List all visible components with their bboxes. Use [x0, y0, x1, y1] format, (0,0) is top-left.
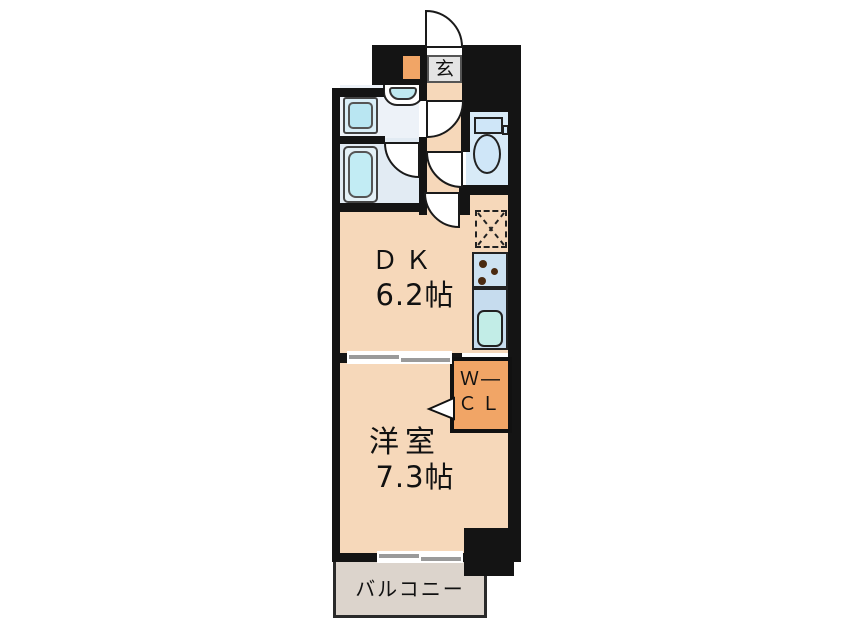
door-swing-overlay [0, 0, 846, 634]
entrance-door-arc [426, 11, 462, 47]
western-room-label: 洋室 [335, 428, 475, 458]
toilet-door-arc [427, 152, 462, 187]
washroom-door-arc [427, 101, 463, 137]
sliding-door-dk-western [347, 351, 452, 364]
dk-room-size: 6.2帖 [340, 281, 490, 310]
window-panel [379, 554, 419, 558]
bathroom-door-arc [385, 143, 419, 177]
western-room-size: 7.3帖 [340, 463, 490, 492]
balcony-sliding-window [377, 551, 463, 563]
dk-room-label: ＤＫ [340, 248, 470, 274]
sliding-door-panel [349, 355, 399, 359]
wcl-entry-arrow-icon [429, 398, 454, 419]
sliding-door-panel [401, 358, 450, 362]
dk-door-arc [425, 193, 459, 227]
floor-plan: 玄 Ｗ― ＣＬ ＤＫ 6.2帖 洋室 7.3帖 バルコニー [0, 0, 846, 634]
window-panel [421, 557, 461, 561]
balcony-label: バルコニー [333, 579, 487, 599]
